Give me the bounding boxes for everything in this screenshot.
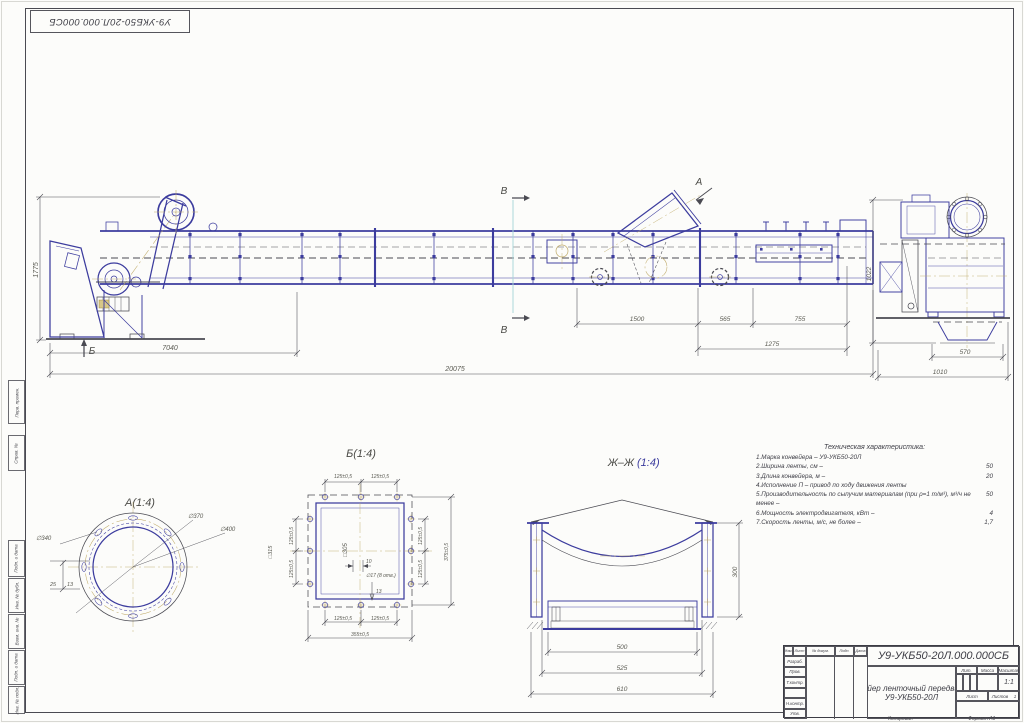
detail-b-dim-13: 13 [376, 589, 382, 595]
section-zh: Ж–Ж (1:4) [527, 457, 743, 698]
tech-row: 1.Марка конвейера – У9-УКБ50-20Л [756, 453, 993, 462]
section-mark-v: В В [501, 186, 530, 336]
title-block-row-razrab: Разраб. [784, 656, 806, 667]
section-zh-scale: (1:4) [637, 457, 660, 469]
title-block: У9-УКБ50-20Л.000.000СБ Конвейер ленточны… [783, 645, 1019, 718]
detail-a-dia-mid: ∅370 [188, 513, 204, 520]
dim-end-width1: 570 [960, 349, 971, 356]
title-block-grid-line [784, 656, 867, 657]
detail-b-pitch-top2: 125±0,5 [371, 474, 389, 480]
title-block-lit-header: Лит. [956, 666, 977, 674]
dim-zh-height: 300 [732, 566, 739, 577]
section-zh-plate-bolts [533, 537, 711, 606]
view-mark-a: А [695, 177, 712, 205]
dim-zh-inner: 500 [617, 644, 628, 651]
dim-zh-outer: 610 [617, 686, 628, 693]
dim-height: 1775 [33, 262, 40, 278]
main-view-dimensions: 7040 20075 1775 1500 565 755 1275 [33, 194, 876, 378]
end-view-dimensions: 1022 570 1010 [866, 197, 1011, 381]
drawing-canvas: В В А Б 7040 [0, 0, 1024, 723]
tech-row: 4.Исполнение П – привод по ходу движения… [756, 481, 993, 490]
mid-assembly [547, 234, 577, 269]
tech-row: 5.Производительность по сыпучим материал… [756, 490, 993, 509]
dim-end-height: 1022 [866, 266, 873, 281]
title-block-name: Конвейер ленточный передвижной У9-УКБ50-… [867, 666, 956, 719]
title-block-row-prov: Пров. [784, 667, 806, 678]
title-block-col-izm: Изм. [784, 646, 793, 656]
title-block-col-list: Лист [793, 646, 806, 656]
tech-title: Техническая характеристика: [756, 444, 993, 451]
detail-b: Б(1:4) 125±0,5 125±0,5 125±0,5 125±0,5 3… [268, 448, 455, 642]
title-block-row-utv: Утв. [784, 709, 806, 720]
title-block-row-nkontr: Н.контр. [784, 698, 806, 709]
detail-b-total-w: 355±0,5 [351, 632, 369, 638]
section-zh-title: Ж–Ж [607, 457, 635, 469]
detail-b-pitch-bot1: 125±0,5 [334, 616, 352, 622]
detail-a: А(1:4) ∅370 ∅400 ∅340 [36, 497, 236, 632]
title-block-row-tkontr: Т.контр. [784, 677, 806, 688]
detail-b-pitch-bot2: 125±0,5 [371, 616, 389, 622]
discharge-chute [50, 241, 104, 337]
main-view: В В А Б 7040 [33, 177, 876, 378]
tech-characteristics: Техническая характеристика: 1.Марка конв… [756, 444, 993, 527]
dim-tail: 755 [795, 316, 806, 323]
dim-hopper1: 1500 [630, 316, 645, 323]
detail-b-pitch-top1: 125±0,5 [334, 474, 352, 480]
title-block-lit-cell3 [970, 674, 977, 691]
detail-a-dim-s1: 25 [49, 582, 57, 588]
title-block-col-podp: Подп. [835, 646, 854, 656]
travel-wheels [589, 269, 731, 286]
detail-b-total-h: 375±0,5 [444, 543, 450, 561]
title-block-listov: Листов 1 [988, 691, 1020, 701]
drawing-sheet: У9-УКБ50-20Л.000.000СБ Перв. примен. Спр… [0, 0, 1024, 723]
title-block-grid-col1 [806, 656, 835, 719]
dim-tail-total: 1275 [765, 341, 780, 348]
format-label: Формат А1 [968, 716, 995, 722]
view-label-b: Б [89, 346, 96, 357]
dim-zh-mid: 525 [617, 665, 628, 672]
detail-b-sq-outer: □315 [268, 545, 274, 558]
dim-hopper2: 565 [720, 316, 731, 323]
detail-b-pitch-right2: 125±0,5 [418, 560, 424, 578]
detail-a-dia-outer: ∅400 [220, 526, 236, 533]
dim-end-width2: 1010 [933, 369, 948, 376]
tech-row: 6.Мощность электродвигателя, кВт –4 [756, 509, 993, 518]
kopiroval-label: Копировал [888, 716, 913, 722]
section-label-v-bottom: В [501, 325, 508, 336]
tech-row: 7.Скорость ленты, м/с, не более –1,7 [756, 518, 993, 527]
detail-b-pitch-left1: 125±0,5 [289, 527, 295, 545]
detail-b-pitch-left2: 125±0,5 [289, 560, 295, 578]
title-block-lit-cell2 [963, 674, 970, 691]
detail-a-title: А(1:4) [124, 497, 155, 509]
detail-b-dim-10: 10 [366, 559, 372, 565]
dim-total-length: 20075 [444, 366, 465, 373]
detail-b-holes-note: ∅17 (8 отв.) [366, 573, 396, 579]
detail-a-dia-bolt: ∅340 [36, 535, 52, 542]
title-block-col-dokum: № докум. [806, 646, 835, 656]
title-block-doc-number: У9-УКБ50-20Л.000.000СБ [867, 646, 1020, 666]
title-block-row-blank [784, 688, 806, 699]
title-block-scale-value: 1:1 [998, 674, 1020, 691]
title-block-massa-header: Масса [977, 666, 998, 674]
detail-b-pitch-right1: 125±0,5 [418, 527, 424, 545]
tail-assembly [756, 220, 866, 262]
detail-b-title: Б(1:4) [346, 448, 376, 460]
title-block-masshtab-header: Масштаб [998, 666, 1020, 674]
conveyor-frame [100, 222, 873, 287]
drive-station [46, 190, 205, 339]
end-view: 1022 570 1010 [866, 193, 1011, 381]
view-mark-b: Б [81, 339, 96, 357]
title-block-massa-value [977, 674, 998, 691]
title-block-lit-cell1 [956, 674, 963, 691]
title-block-grid-col2 [835, 656, 854, 719]
detail-a-dim-s2: 13 [67, 582, 74, 588]
view-label-a: А [695, 177, 703, 188]
section-label-v-top: В [501, 186, 508, 197]
dim-drive-length: 7040 [162, 345, 178, 352]
title-block-col-data: Дата [854, 646, 867, 656]
tech-row: 2.Ширина ленты, см –50 [756, 462, 993, 471]
title-block-list: Лист [956, 691, 988, 701]
detail-b-sq-inner: □305 [343, 543, 349, 557]
tech-row: 3.Длина конвейера, м –20 [756, 472, 993, 481]
